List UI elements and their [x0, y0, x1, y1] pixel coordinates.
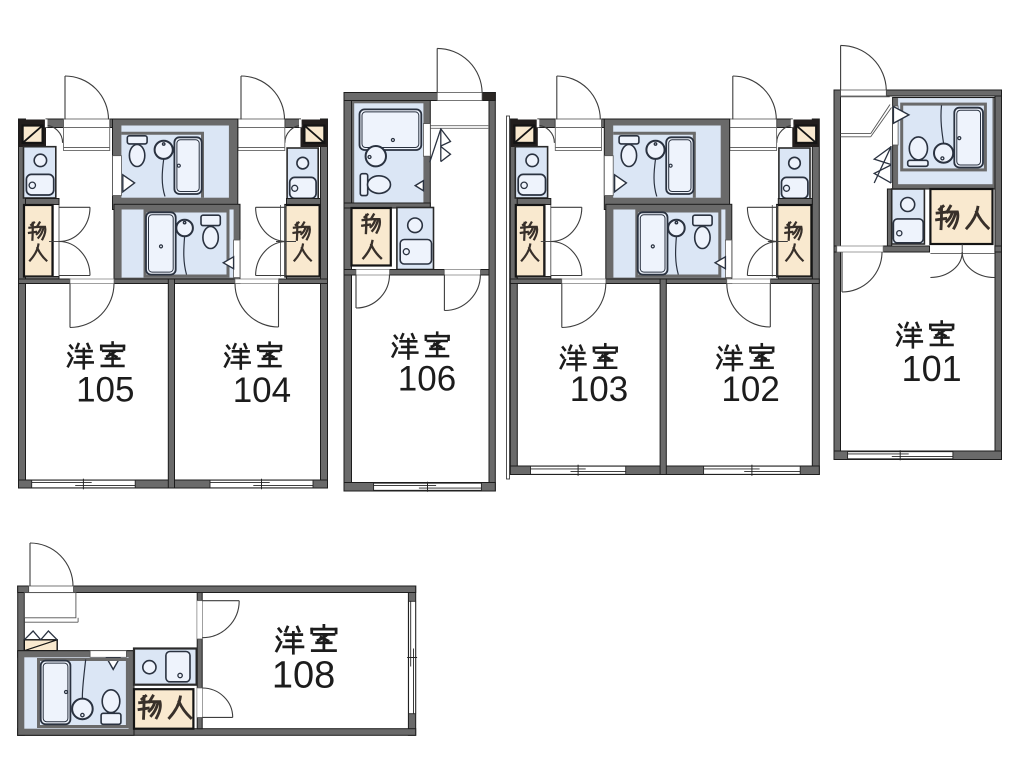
svg-text:101: 101: [902, 348, 962, 389]
svg-text:103: 103: [570, 370, 628, 409]
svg-text:106: 106: [398, 360, 456, 399]
svg-text:105: 105: [76, 371, 134, 410]
svg-text:108: 108: [272, 654, 335, 696]
svg-text:102: 102: [721, 370, 779, 409]
svg-text:104: 104: [233, 371, 291, 410]
